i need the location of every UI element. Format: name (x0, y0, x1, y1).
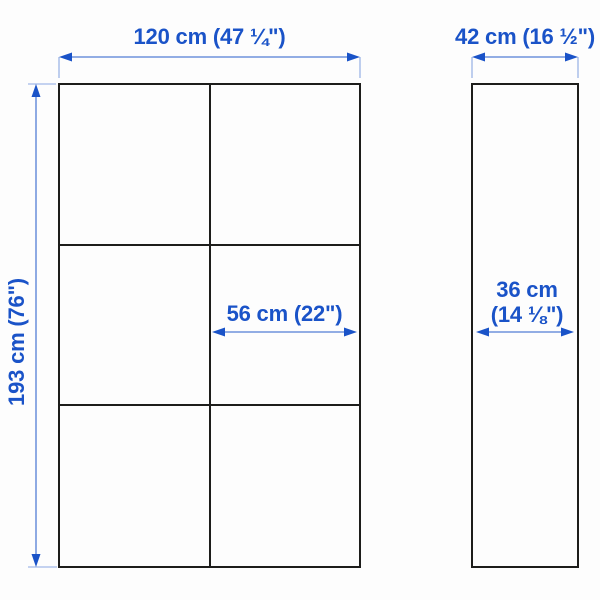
dimension-diagram: 120 cm (47 ¼") 42 cm (16 ½") 193 cm (76"… (0, 0, 600, 600)
front-view-column-divider (209, 85, 211, 566)
inner-depth-dimension-label-line2: (14 ⅛") (447, 302, 600, 327)
inner-depth-dimension-label: 36 cm (14 ⅛") (447, 277, 600, 327)
front-view-row-divider-2 (60, 404, 359, 406)
depth-dimension-arrow (472, 53, 578, 79)
depth-dimension-label: 42 cm (16 ½") (440, 25, 600, 49)
height-dimension-arrow (28, 84, 57, 567)
inner-width-dimension-label: 56 cm (22") (214, 302, 355, 326)
width-dimension-arrow (59, 53, 360, 79)
inner-depth-dimension-label-line1: 36 cm (447, 277, 600, 302)
width-dimension-label: 120 cm (47 ¼") (58, 25, 361, 49)
front-view-row-divider-1 (60, 244, 359, 246)
height-dimension-label: 193 cm (76") (4, 242, 30, 442)
